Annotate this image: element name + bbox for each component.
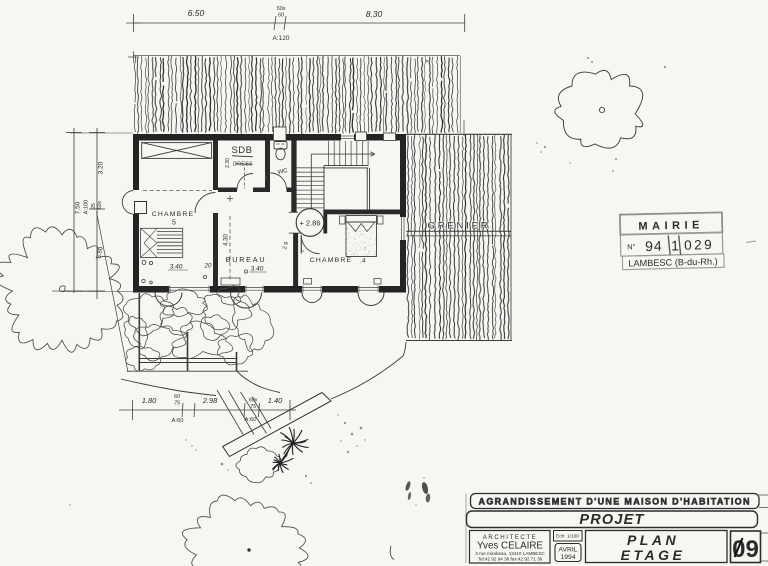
svg-text:60: 60	[278, 13, 285, 19]
svg-text:3 rue mirabeau, 13410 LAMBESC: 3 rue mirabeau, 13410 LAMBESC	[475, 551, 545, 556]
svg-text:Tel:42 92 94 38 fax:42 92 71: Tel:42 92 94 38 fax:42 92 71 36	[478, 557, 543, 562]
svg-text:4.30: 4.30	[224, 234, 230, 246]
svg-text:A:60: A:60	[172, 418, 184, 424]
svg-text:029: 029	[684, 237, 714, 253]
svg-text:PROJET: PROJET	[579, 512, 644, 528]
svg-text:09: 09	[732, 536, 759, 563]
svg-text:AVRIL: AVRIL	[558, 547, 577, 554]
svg-text:75: 75	[250, 404, 257, 410]
svg-text:BUREAU: BUREAU	[226, 255, 267, 264]
svg-text:8.30: 8.30	[366, 9, 383, 19]
svg-text:1994: 1994	[560, 554, 575, 561]
svg-text:50x: 50x	[277, 6, 286, 12]
svg-text:N°: N°	[627, 242, 636, 251]
svg-text:5: 5	[172, 220, 176, 227]
svg-text:2.9: 2.9	[282, 241, 290, 250]
svg-text:2.98: 2.98	[202, 396, 218, 405]
svg-text:Yves CELAIRE: Yves CELAIRE	[477, 541, 543, 552]
svg-text:1.80: 1.80	[142, 396, 157, 405]
svg-text:1.40: 1.40	[268, 396, 283, 405]
svg-text:75: 75	[174, 401, 181, 407]
svg-text:A:60: A:60	[245, 417, 257, 423]
svg-text:25: 25	[91, 203, 97, 209]
svg-text:SDB: SDB	[231, 145, 252, 156]
svg-text:ETAGE: ETAGE	[621, 547, 686, 563]
svg-text:A:100: A:100	[84, 200, 90, 214]
svg-text:6.50: 6.50	[188, 8, 205, 18]
svg-text:3.40: 3.40	[170, 264, 183, 271]
svg-text:Ech: 1/100: Ech: 1/100	[556, 534, 579, 540]
svg-text:60x: 60x	[249, 398, 258, 404]
svg-text:AGRANDISSEMENT D'UNE MAISON D': AGRANDISSEMENT D'UNE MAISON D'HABITATION	[479, 497, 751, 507]
svg-text:GRENIER: GRENIER	[428, 221, 491, 232]
svg-text:LAMBESC (B-du-Rh.): LAMBESC (B-du-Rh.)	[628, 256, 718, 268]
svg-text:CHAMBRE: CHAMBRE	[310, 257, 352, 264]
svg-text:+ 2.86: + 2.86	[299, 219, 320, 228]
svg-text:60x: 60x	[97, 200, 103, 209]
svg-text:MAIRIE: MAIRIE	[638, 219, 704, 232]
svg-text:20: 20	[204, 263, 212, 270]
svg-text:7.50: 7.50	[75, 201, 82, 214]
svg-text:3.40: 3.40	[251, 266, 264, 273]
svg-text:60: 60	[174, 394, 181, 400]
svg-text:WC: WC	[277, 168, 289, 176]
svg-text:PLAN: PLAN	[627, 532, 679, 548]
svg-text:CHAMBRE: CHAMBRE	[152, 211, 194, 218]
svg-text:1: 1	[671, 237, 679, 253]
svg-text:94: 94	[645, 238, 663, 254]
svg-text:3.20: 3.20	[98, 161, 105, 174]
svg-text:A:120: A:120	[273, 35, 290, 42]
svg-text:2.30: 2.30	[225, 158, 231, 168]
svg-text:.4: .4	[360, 258, 366, 265]
